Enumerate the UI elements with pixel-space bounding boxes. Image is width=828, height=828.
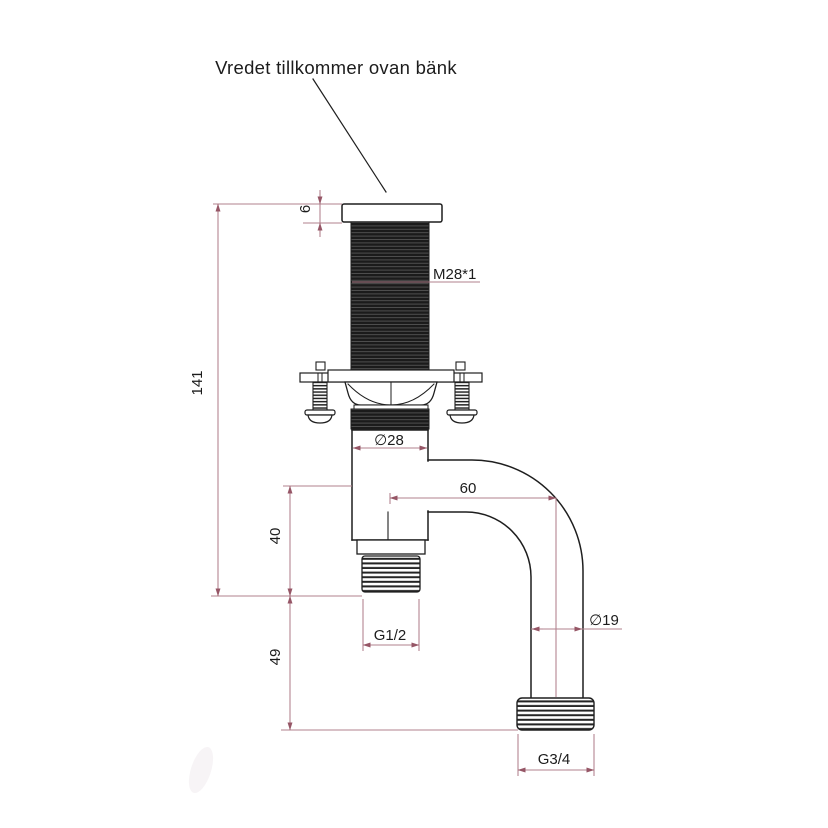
thread-m28-label: M28*1 bbox=[433, 266, 476, 283]
dim-60-label: 60 bbox=[460, 480, 477, 497]
m28-threaded-stem-lower bbox=[351, 409, 429, 429]
annotation-label: Vredet tillkommer ovan bänk bbox=[215, 57, 457, 78]
dim-diameter-19-label: ∅19 bbox=[589, 612, 619, 629]
dim-40-label: 40 bbox=[267, 528, 284, 545]
faucet-technical-drawing: Vredet tillkommer ovan bänk 6 M28*1 141 … bbox=[0, 0, 828, 828]
body-neck bbox=[357, 540, 425, 554]
right-screw-shank bbox=[455, 382, 469, 410]
right-screw-tip bbox=[456, 362, 465, 370]
lock-nut-step bbox=[354, 405, 428, 409]
left-screw-tip bbox=[316, 362, 325, 370]
mounting-plate-raised-center bbox=[328, 370, 454, 382]
dim-49-label: 49 bbox=[267, 649, 284, 666]
dim-141-label: 141 bbox=[189, 370, 206, 395]
m28-threaded-stem-upper bbox=[351, 222, 429, 372]
left-screw-head bbox=[305, 410, 335, 415]
thread-g34-label: G3/4 bbox=[538, 751, 571, 768]
left-screw-shank bbox=[313, 382, 327, 410]
technical-drawing-canvas: Vredet tillkommer ovan bänk 6 M28*1 141 … bbox=[0, 0, 828, 828]
dim-diameter-28-label: ∅28 bbox=[374, 432, 404, 449]
dim-6-label: 6 bbox=[297, 205, 314, 213]
top-cap bbox=[342, 204, 442, 222]
right-screw-head bbox=[447, 410, 477, 415]
g12-thread bbox=[362, 556, 420, 592]
thread-g12-label: G1/2 bbox=[374, 627, 407, 644]
g34-thread bbox=[517, 698, 594, 730]
